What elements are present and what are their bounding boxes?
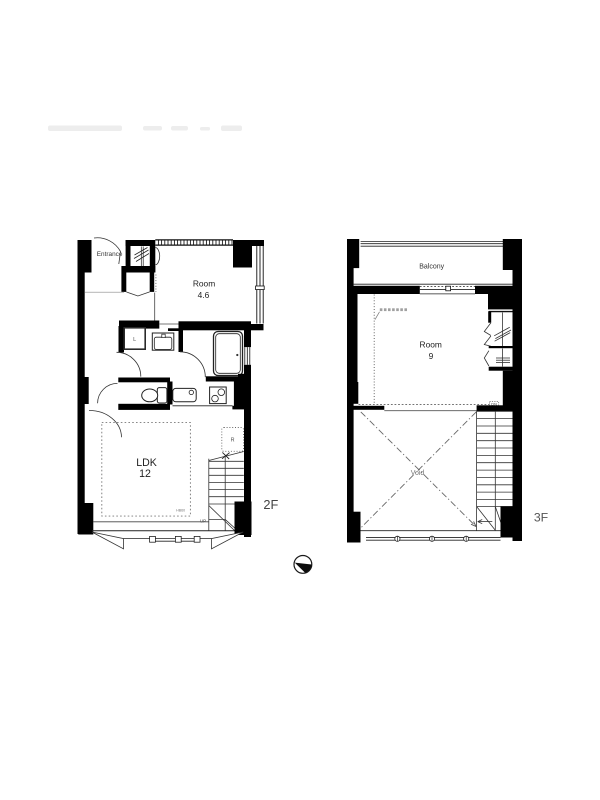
svg-text:R: R	[231, 437, 235, 443]
svg-text:2F: 2F	[263, 497, 278, 512]
svg-text:Room: Room	[193, 279, 215, 289]
svg-text:12: 12	[139, 468, 151, 480]
svg-text:3F: 3F	[534, 510, 549, 524]
svg-text:UP: UP	[200, 519, 206, 524]
svg-text:9: 9	[429, 351, 434, 361]
svg-text:Room: Room	[420, 339, 442, 349]
svg-text:Void: Void	[411, 470, 425, 477]
svg-text:Entrance: Entrance	[97, 251, 123, 258]
svg-text:L: L	[133, 337, 136, 343]
svg-text:HB60: HB60	[176, 509, 185, 513]
svg-text:Balcony: Balcony	[419, 264, 444, 271]
svg-text:4.6: 4.6	[198, 290, 210, 300]
svg-text:LDK: LDK	[136, 457, 157, 469]
